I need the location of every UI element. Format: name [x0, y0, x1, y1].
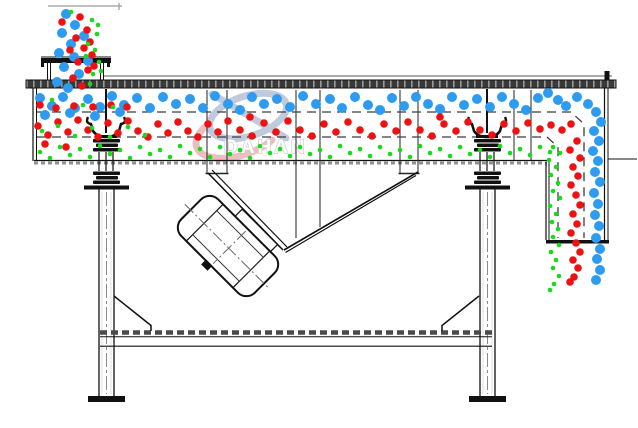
particle [84, 54, 89, 59]
particle [573, 137, 581, 145]
particle [210, 91, 220, 101]
particle [318, 148, 323, 153]
gusset-left [114, 296, 151, 331]
particle [509, 99, 519, 109]
particle [58, 92, 68, 102]
particle [36, 101, 44, 109]
particle [574, 172, 582, 180]
particle [538, 145, 543, 150]
particle [518, 147, 523, 152]
particle [308, 132, 316, 140]
particle [83, 94, 93, 104]
particle [561, 101, 571, 111]
particle [259, 99, 269, 109]
particle [288, 154, 293, 159]
particle [528, 153, 533, 158]
particle [70, 102, 78, 110]
particle [108, 135, 113, 140]
particle [554, 258, 559, 263]
particle [595, 177, 605, 187]
particle [435, 104, 445, 114]
particle [320, 120, 328, 128]
particle [184, 127, 192, 135]
particle [154, 120, 162, 128]
particle [145, 103, 155, 113]
particle [168, 155, 173, 160]
particle [83, 26, 91, 34]
particle [90, 18, 95, 23]
particle [548, 288, 553, 293]
particle [418, 144, 423, 149]
particle [171, 99, 181, 109]
particle [399, 101, 409, 111]
particle [311, 99, 321, 109]
particle [428, 151, 433, 156]
particle [567, 181, 575, 189]
particle [50, 98, 55, 103]
particle [332, 128, 340, 136]
particle [62, 143, 70, 151]
particle [325, 94, 335, 104]
gusset-right [442, 296, 479, 331]
particle [58, 18, 66, 26]
particle [198, 103, 208, 113]
particle [557, 243, 562, 248]
particle [64, 128, 72, 136]
particle [488, 155, 493, 160]
particle [558, 196, 563, 201]
particle [56, 124, 61, 129]
particle [208, 155, 213, 160]
particle [554, 165, 559, 170]
particle [185, 94, 195, 104]
particle [78, 82, 86, 90]
particle [551, 235, 556, 240]
particle [591, 107, 601, 117]
suspension-leg-left [84, 89, 129, 402]
particle [218, 145, 223, 150]
particle [428, 132, 436, 140]
particle [508, 151, 513, 156]
particle [549, 250, 554, 255]
particle [78, 147, 83, 152]
particle [174, 118, 182, 126]
suspension-leg-right [465, 89, 510, 402]
particle [88, 51, 96, 59]
particle [94, 133, 102, 141]
vibrating-screen-diagram: DAHAN ® [0, 0, 638, 428]
particle [258, 144, 263, 149]
particle [459, 100, 469, 110]
particle [591, 233, 601, 243]
particle [285, 102, 295, 112]
particle [104, 119, 112, 127]
particle [38, 150, 43, 155]
particle [557, 274, 562, 279]
particle [57, 28, 67, 38]
particle [476, 126, 484, 134]
particle [63, 83, 73, 93]
particle [98, 144, 103, 149]
particle [123, 103, 131, 111]
particle [498, 144, 503, 149]
particle [569, 210, 577, 218]
particle [363, 100, 373, 110]
particle [595, 265, 605, 275]
particle [337, 103, 347, 113]
particle [387, 93, 397, 103]
particle [375, 105, 385, 115]
particle [472, 94, 482, 104]
particle [552, 282, 557, 287]
particle [89, 103, 97, 111]
particle [524, 119, 532, 127]
particle [272, 128, 280, 136]
particle [198, 147, 203, 152]
particle [558, 126, 566, 134]
particle [551, 145, 556, 150]
particle [90, 126, 95, 131]
particle [34, 122, 42, 130]
particle [111, 105, 116, 110]
particle [72, 34, 80, 42]
particle [69, 74, 77, 82]
particle [388, 152, 393, 157]
particle [543, 88, 553, 98]
beam-right-end-cap [605, 71, 610, 81]
particle [593, 199, 603, 209]
particle [574, 264, 582, 272]
particle [58, 145, 63, 150]
particle [40, 129, 45, 134]
particle [590, 167, 600, 177]
particle [96, 23, 101, 28]
particle [368, 132, 376, 140]
particle [228, 152, 233, 157]
particle [54, 48, 64, 58]
particle [76, 13, 84, 21]
particle [447, 92, 457, 102]
particle [569, 256, 577, 264]
particle [260, 119, 268, 127]
particle [554, 212, 559, 217]
particle [93, 48, 98, 53]
particle [551, 189, 556, 194]
particle [556, 181, 561, 186]
particle [128, 156, 133, 161]
particle [589, 126, 599, 136]
particle [358, 147, 363, 152]
particle [344, 118, 352, 126]
particle [464, 118, 472, 126]
vibration-motor [163, 178, 296, 311]
particle [88, 155, 93, 160]
particle [59, 62, 69, 72]
particle [41, 140, 49, 148]
particle [74, 58, 82, 66]
particle [86, 42, 91, 47]
particle [392, 127, 400, 135]
particle [348, 151, 353, 156]
particle [44, 131, 52, 139]
particle [458, 145, 463, 150]
particle [576, 248, 584, 256]
particle [132, 93, 142, 103]
particle [69, 10, 74, 15]
particle [88, 82, 93, 87]
particle [126, 125, 131, 130]
particle [356, 126, 364, 134]
particle [328, 155, 333, 160]
particle [588, 146, 598, 156]
particle [566, 146, 574, 154]
particle [114, 129, 122, 137]
particle [95, 32, 100, 37]
particle [452, 127, 460, 135]
particle [569, 163, 577, 171]
particle [548, 150, 553, 155]
particle [48, 156, 53, 161]
particle [246, 113, 254, 121]
particle [583, 99, 593, 109]
base-cross-beam [100, 333, 492, 347]
particle [567, 120, 575, 128]
particle [238, 148, 243, 153]
particle [536, 125, 544, 133]
particle [478, 148, 483, 153]
particle [298, 145, 303, 150]
particle [90, 111, 100, 121]
particle [158, 148, 163, 153]
particle [572, 191, 580, 199]
particle [73, 134, 78, 139]
top-frame-beam [26, 71, 616, 88]
particle [70, 20, 80, 30]
particle [576, 201, 584, 209]
particle [488, 131, 496, 139]
particle [594, 136, 604, 146]
particle [485, 102, 495, 112]
particle [595, 244, 605, 254]
particle [66, 46, 74, 54]
particle [572, 92, 582, 102]
particle [398, 148, 403, 153]
particle [547, 158, 552, 163]
watermark-brand-text: DAHAN [224, 137, 308, 158]
particle [548, 204, 553, 209]
particle [592, 254, 602, 264]
particle [118, 148, 123, 153]
particle [148, 152, 153, 157]
particle [368, 154, 373, 159]
particle [178, 144, 183, 149]
particle [97, 60, 102, 65]
particle [596, 117, 606, 127]
particle [278, 147, 283, 152]
particle [68, 153, 73, 158]
particle [99, 69, 104, 74]
particle [338, 144, 343, 149]
particle [108, 152, 113, 157]
particle [408, 155, 413, 160]
particle [248, 132, 256, 140]
particle [124, 117, 132, 125]
particle [547, 121, 555, 129]
particle [549, 173, 554, 178]
particle [500, 120, 508, 128]
particle [551, 266, 556, 271]
particle [436, 113, 444, 121]
particle [143, 133, 148, 138]
particle [416, 126, 424, 134]
particle [188, 151, 193, 156]
particle [284, 117, 292, 125]
particle [91, 72, 96, 77]
particle [107, 91, 117, 101]
particle [423, 99, 433, 109]
particle [350, 92, 360, 102]
particle [567, 229, 575, 237]
particle [411, 92, 421, 102]
particle [235, 105, 245, 115]
particle [573, 220, 581, 228]
particle [296, 126, 304, 134]
particle [448, 154, 453, 159]
particle [590, 210, 600, 220]
particle [90, 62, 98, 70]
particle [214, 128, 222, 136]
particle [158, 92, 168, 102]
particle [566, 278, 574, 286]
particle [138, 145, 143, 150]
feed-chute-hint [48, 3, 122, 10]
particle [298, 91, 308, 101]
particle [81, 103, 86, 108]
particle [589, 188, 599, 198]
particle [52, 77, 62, 87]
particle [556, 227, 561, 232]
particle [194, 133, 202, 141]
particle [497, 92, 507, 102]
particle [134, 127, 142, 135]
particle [164, 129, 172, 137]
particle [247, 92, 257, 102]
particle [438, 147, 443, 152]
particle [440, 120, 448, 128]
particle [591, 275, 601, 285]
particle [40, 110, 50, 120]
particle [550, 220, 555, 225]
particle [404, 118, 412, 126]
particle [52, 104, 60, 112]
particle [594, 221, 604, 231]
particle [236, 126, 244, 134]
particle [74, 116, 82, 124]
particle [204, 120, 212, 128]
diagram-canvas: DAHAN ® [0, 0, 638, 428]
particle [521, 105, 531, 115]
particle [272, 94, 282, 104]
particle [572, 239, 580, 247]
particle [558, 151, 563, 156]
particle [468, 152, 473, 157]
particle [308, 152, 313, 157]
particle [593, 156, 603, 166]
particle [378, 145, 383, 150]
particle [224, 117, 232, 125]
particle [533, 93, 543, 103]
particle [223, 99, 233, 109]
particle [248, 156, 253, 161]
particle [553, 95, 563, 105]
particle [268, 151, 273, 156]
particle [512, 127, 520, 135]
particle [380, 120, 388, 128]
particle [576, 154, 584, 162]
